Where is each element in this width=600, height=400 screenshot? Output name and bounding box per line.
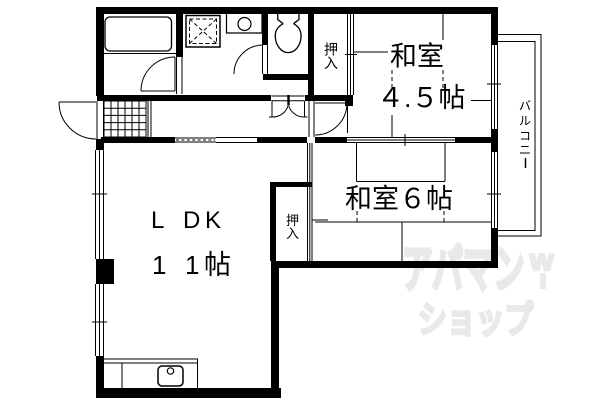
svg-text:ル: ル xyxy=(519,114,531,128)
svg-text:1: 1 xyxy=(152,250,166,280)
svg-text:D: D xyxy=(183,207,200,234)
svg-text:1: 1 xyxy=(185,250,199,280)
svg-text:ニ: ニ xyxy=(519,143,531,157)
svg-text:４.５帖: ４.５帖 xyxy=(377,83,466,113)
svg-text:L: L xyxy=(151,207,164,234)
svg-text:コ: コ xyxy=(519,129,531,143)
svg-text:K: K xyxy=(205,207,221,234)
svg-text:入: 入 xyxy=(324,55,338,71)
svg-text:バ: バ xyxy=(519,99,531,113)
svg-text:帖: 帖 xyxy=(204,250,231,280)
svg-text:和室: 和室 xyxy=(390,42,444,72)
svg-text:入: 入 xyxy=(286,226,299,241)
svg-text:和室６帖: 和室６帖 xyxy=(345,184,453,214)
